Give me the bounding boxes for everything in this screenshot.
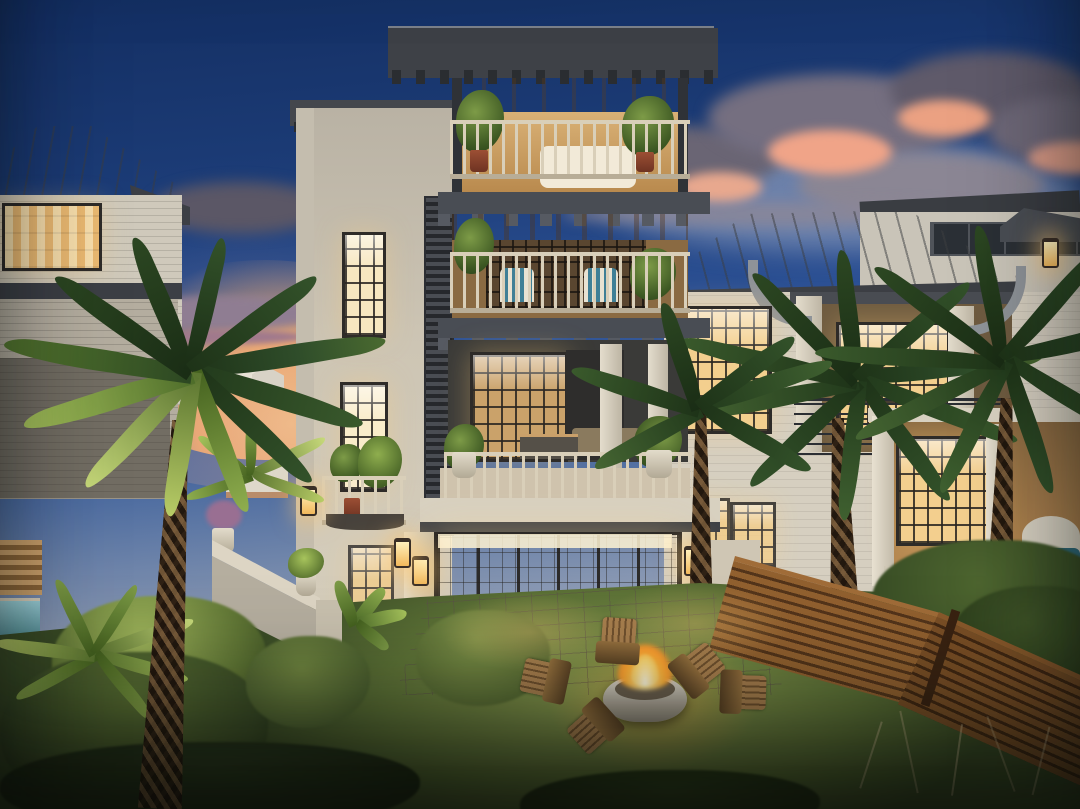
f4-band [438, 192, 710, 214]
juliet-base [326, 514, 404, 530]
pergola-lit [0, 540, 42, 595]
terrace-urn [452, 452, 476, 478]
dry-twigs [860, 700, 1080, 809]
adirondack-chair [709, 665, 767, 719]
f1-interior-glow [438, 534, 672, 548]
f3-railing [450, 252, 690, 313]
lit-corner-window [2, 203, 102, 271]
adirondack-chair [590, 616, 646, 675]
annex-lower-lantern [394, 538, 411, 568]
cloud-pink-highlight [768, 130, 892, 174]
plant-pot [470, 150, 488, 172]
twilight-beach-house-rendering [0, 0, 1080, 809]
plant-pot [636, 152, 654, 172]
terrace-urn [646, 450, 672, 478]
f2-fascia [420, 498, 720, 524]
cloud-pink-highlight [898, 100, 990, 136]
stair-window-upper [342, 232, 386, 338]
pier-lantern [412, 556, 429, 586]
porch-column [872, 416, 894, 586]
f2-soffit [420, 522, 720, 532]
adirondack-chair [517, 649, 583, 712]
